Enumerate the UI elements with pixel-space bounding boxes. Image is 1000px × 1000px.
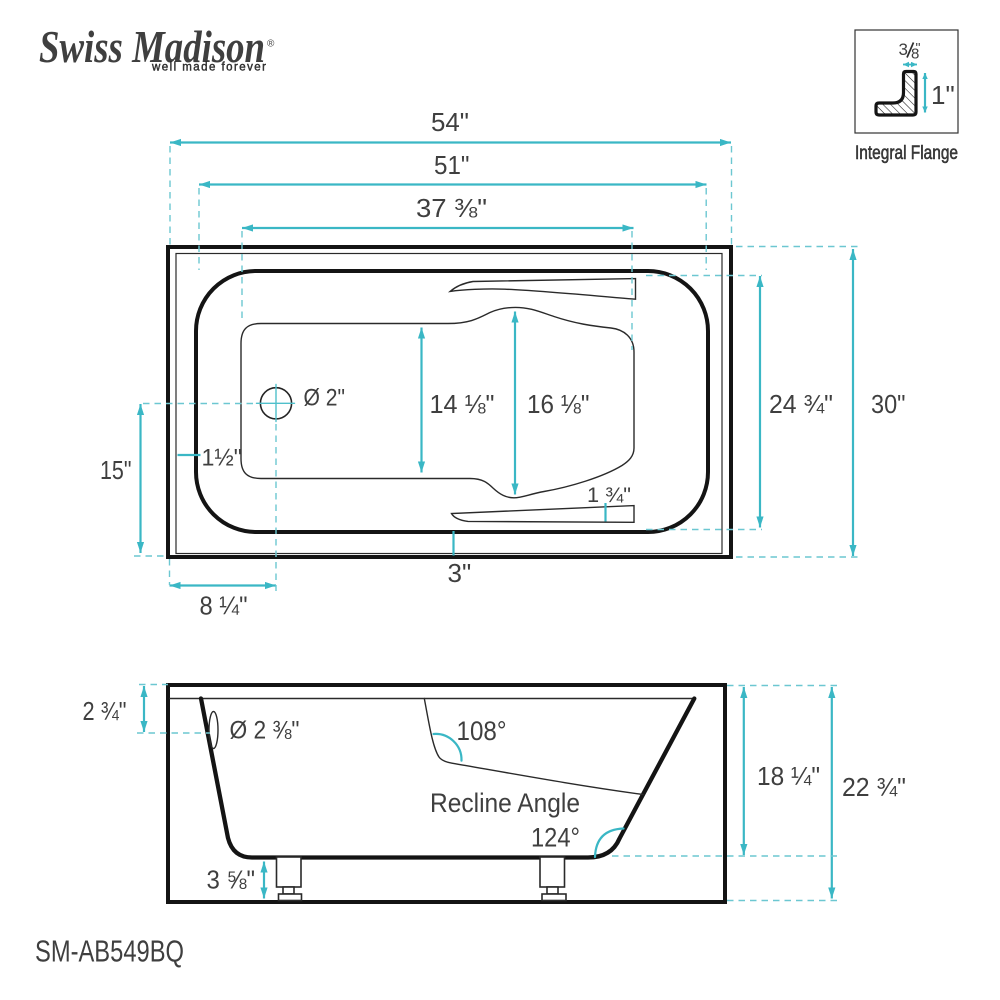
svg-text:24 ¾": 24 ¾" (769, 389, 833, 419)
svg-text:8 ¼": 8 ¼" (200, 591, 248, 621)
svg-text:108°: 108° (457, 716, 507, 746)
svg-text:124°: 124° (531, 823, 580, 853)
svg-text:Integral Flange: Integral Flange (855, 143, 958, 164)
svg-text:18 ¼": 18 ¼" (757, 761, 820, 791)
svg-text:Ø 2": Ø 2" (304, 385, 346, 412)
svg-text:16 ⅛": 16 ⅛" (527, 389, 590, 419)
svg-text:3": 3" (448, 558, 472, 588)
svg-text:1": 1" (931, 80, 955, 110)
svg-text:Ø 2 ⅜": Ø 2 ⅜" (230, 717, 300, 745)
svg-text:SM-AB549BQ: SM-AB549BQ (35, 934, 184, 969)
svg-text:22 ¾": 22 ¾" (842, 772, 906, 802)
svg-text:30": 30" (871, 389, 906, 419)
svg-text:1 ¾": 1 ¾" (587, 483, 631, 507)
svg-text:®: ® (267, 39, 275, 50)
svg-text:14 ⅛": 14 ⅛" (430, 389, 495, 419)
svg-text:1½": 1½" (202, 445, 243, 472)
svg-text:2 ¾": 2 ¾" (83, 696, 127, 726)
svg-text:": " (916, 40, 921, 56)
svg-text:37 ⅜": 37 ⅜" (416, 193, 487, 223)
svg-text:3: 3 (899, 40, 908, 59)
svg-text:Recline Angle: Recline Angle (430, 788, 580, 818)
svg-text:54": 54" (431, 107, 469, 137)
svg-text:51": 51" (434, 150, 470, 180)
svg-text:15": 15" (100, 455, 132, 485)
svg-text:3 ⅝": 3 ⅝" (207, 865, 256, 895)
